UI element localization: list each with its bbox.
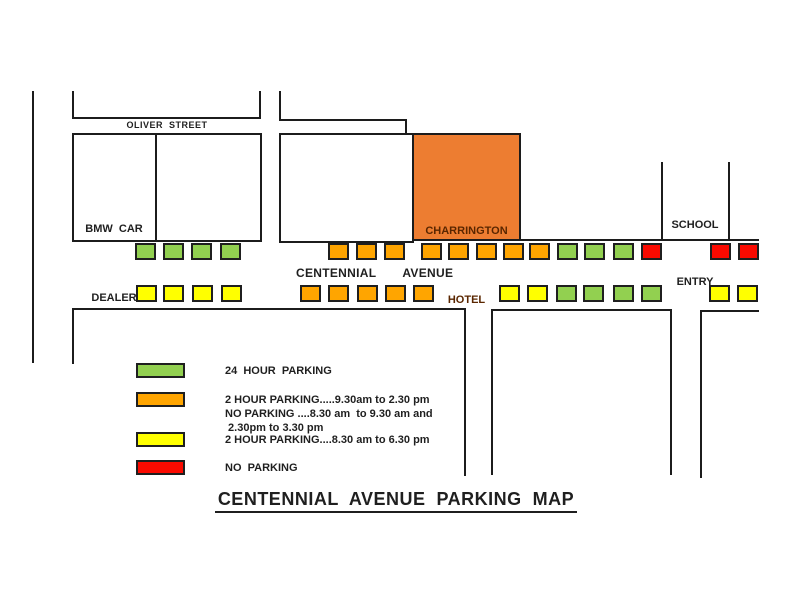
legend-text: 2 HOUR PARKING....8.30 am to 6.30 pm xyxy=(225,433,430,447)
yellow-swatch xyxy=(136,432,185,447)
school-label-line1: SCHOOL xyxy=(661,216,729,235)
parking-map-canvas: OLIVER STREET BMW CAR DEALER CHARRINGTON… xyxy=(0,0,792,612)
street-line xyxy=(279,91,281,121)
parking-space-yellow xyxy=(136,285,157,302)
orange-swatch xyxy=(136,392,185,407)
legend-text: NO PARKING xyxy=(225,461,298,475)
legend-text: 2 HOUR PARKING.....9.30am to 2.30 pmNO P… xyxy=(225,393,433,435)
bmw-label-line1: BMW CAR xyxy=(74,218,154,241)
title-wrap: CENTENNIAL AVENUE PARKING MAP xyxy=(0,489,792,513)
parking-space-green xyxy=(613,243,634,260)
parking-space-orange xyxy=(413,285,434,302)
parking-space-red xyxy=(641,243,662,260)
parking-space-orange xyxy=(328,285,349,302)
parking-space-yellow xyxy=(737,285,758,302)
legend-label: 24 HOUR PARKING xyxy=(225,364,332,378)
parking-row-south xyxy=(0,285,792,302)
green-swatch xyxy=(136,363,185,378)
street-line xyxy=(670,309,672,475)
parking-space-green xyxy=(583,285,604,302)
empty-block xyxy=(279,133,414,243)
parking-space-orange xyxy=(385,285,406,302)
parking-space-orange xyxy=(476,243,497,260)
bmw-block-divider xyxy=(155,133,157,242)
page-title: CENTENNIAL AVENUE PARKING MAP xyxy=(215,489,577,513)
parking-space-yellow xyxy=(192,285,213,302)
legend: 24 HOUR PARKING2 HOUR PARKING.....9.30am… xyxy=(136,363,496,483)
street-line xyxy=(700,310,702,478)
legend-label: NO PARKING ....8.30 am to 9.30 am and xyxy=(225,407,433,421)
parking-space-orange xyxy=(421,243,442,260)
parking-space-green xyxy=(613,285,634,302)
street-line xyxy=(72,117,261,119)
parking-space-green xyxy=(135,243,156,260)
parking-space-green xyxy=(163,243,184,260)
parking-space-green xyxy=(191,243,212,260)
avenue-label-word1: CENTENNIAL xyxy=(296,266,376,280)
parking-space-red xyxy=(738,243,759,260)
oliver-street-label: OLIVER STREET xyxy=(72,120,262,130)
parking-space-green xyxy=(220,243,241,260)
parking-space-orange xyxy=(356,243,377,260)
parking-space-orange xyxy=(384,243,405,260)
parking-space-red xyxy=(710,243,731,260)
legend-text: 24 HOUR PARKING xyxy=(225,364,332,378)
parking-space-orange xyxy=(503,243,524,260)
legend-label: NO PARKING xyxy=(225,461,298,475)
parking-space-green xyxy=(641,285,662,302)
parking-space-green xyxy=(557,243,578,260)
parking-row-north xyxy=(0,243,792,260)
parking-space-orange xyxy=(300,285,321,302)
street-line xyxy=(32,91,34,363)
parking-space-green xyxy=(556,285,577,302)
parking-space-green xyxy=(584,243,605,260)
street-line xyxy=(259,91,261,119)
parking-space-yellow xyxy=(163,285,184,302)
parking-space-orange xyxy=(448,243,469,260)
street-line xyxy=(72,91,74,119)
hotel-label-line1: CHARRINGTON xyxy=(412,220,521,243)
parking-space-yellow xyxy=(709,285,730,302)
centennial-avenue-label: CENTENNIAL AVENUE xyxy=(296,266,453,280)
parking-space-yellow xyxy=(527,285,548,302)
parking-space-orange xyxy=(328,243,349,260)
legend-label: 2 HOUR PARKING.....9.30am to 2.30 pm xyxy=(225,393,433,407)
parking-space-orange xyxy=(357,285,378,302)
parking-space-orange xyxy=(529,243,550,260)
avenue-label-word2: AVENUE xyxy=(402,266,453,280)
bmw-dealer-label: BMW CAR DEALER xyxy=(74,172,154,356)
street-line xyxy=(279,119,407,121)
legend-label: 2 HOUR PARKING....8.30 am to 6.30 pm xyxy=(225,433,430,447)
parking-space-yellow xyxy=(499,285,520,302)
red-swatch xyxy=(136,460,185,475)
parking-space-yellow xyxy=(221,285,242,302)
